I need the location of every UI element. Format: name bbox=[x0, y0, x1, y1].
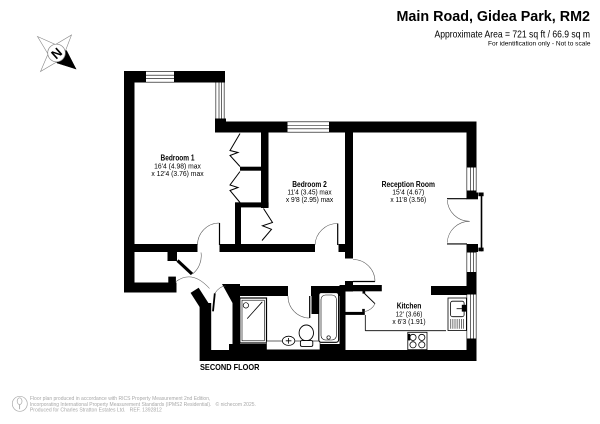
svg-text:x 9'8 (2.95) max: x 9'8 (2.95) max bbox=[286, 195, 334, 204]
svg-text:For identification only - Not: For identification only - Not to scale bbox=[488, 41, 591, 47]
svg-text:Approximate Area = 721 sq ft /: Approximate Area = 721 sq ft / 66.9 sq m bbox=[435, 30, 591, 41]
svg-text:x 12'4 (3.76) max: x 12'4 (3.76) max bbox=[151, 169, 204, 178]
svg-text:Produced for Charles Stratton: Produced for Charles Stratton Estates Lt… bbox=[30, 408, 162, 414]
svg-text:SECOND FLOOR: SECOND FLOOR bbox=[200, 362, 260, 372]
svg-text:x 11'8 (3.56): x 11'8 (3.56) bbox=[390, 195, 426, 204]
svg-text:x 6'3 (1.91): x 6'3 (1.91) bbox=[392, 317, 425, 326]
svg-text:Main Road, Gidea Park, RM2: Main Road, Gidea Park, RM2 bbox=[397, 9, 591, 25]
